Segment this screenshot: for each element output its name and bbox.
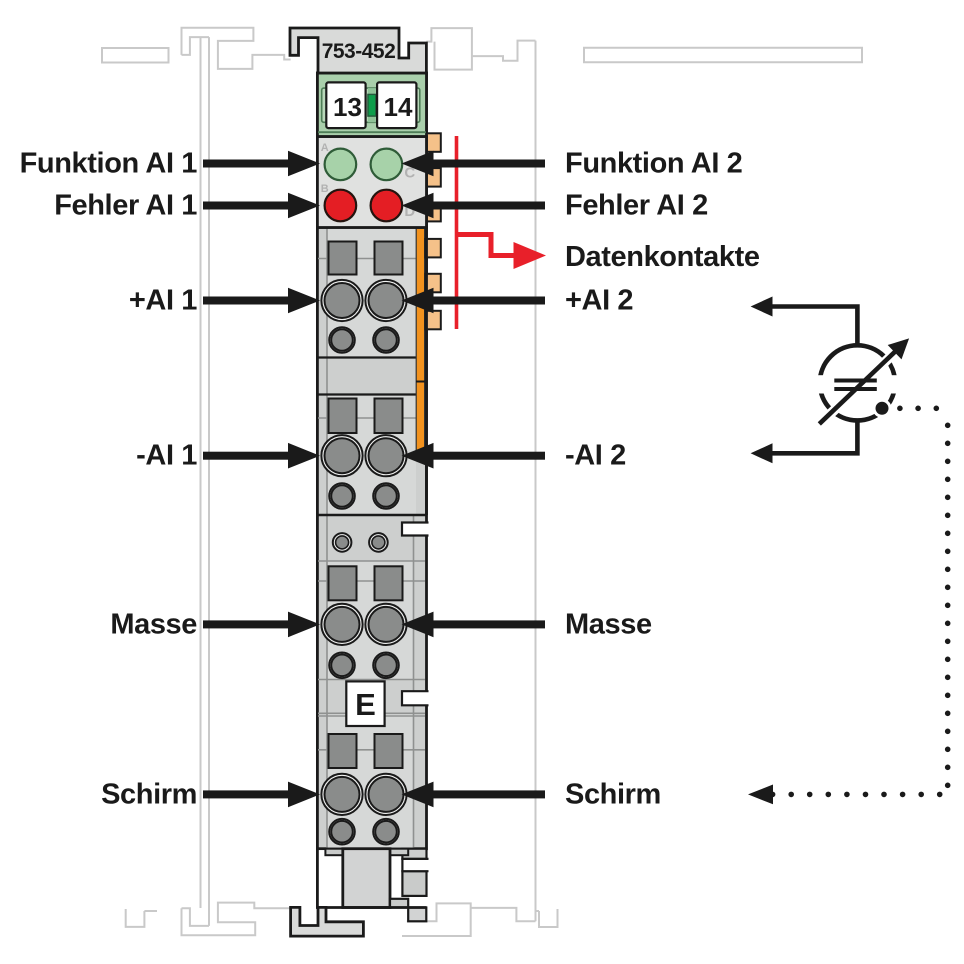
svg-text:Funktion AI 2: Funktion AI 2 [565,148,742,180]
svg-text:+AI 2: +AI 2 [565,285,633,317]
svg-text:Schirm: Schirm [565,778,661,810]
svg-text:Fehler AI 2: Fehler AI 2 [565,190,708,222]
svg-text:E: E [355,687,376,722]
svg-text:B: B [321,183,329,195]
svg-text:A: A [321,142,329,154]
svg-text:Masse: Masse [565,608,652,640]
svg-text:Fehler AI 1: Fehler AI 1 [54,190,197,222]
svg-text:Schirm: Schirm [101,778,197,810]
svg-text:Funktion AI 1: Funktion AI 1 [20,148,198,180]
svg-text:13: 13 [333,92,362,122]
svg-text:Datenkontakte: Datenkontakte [565,241,760,273]
svg-text:+AI 1: +AI 1 [129,285,197,317]
svg-text:-AI 1: -AI 1 [136,440,197,472]
svg-text:-AI 2: -AI 2 [565,440,626,472]
svg-text:753-452: 753-452 [322,40,396,63]
svg-text:Masse: Masse [110,608,197,640]
svg-text:14: 14 [384,92,413,122]
